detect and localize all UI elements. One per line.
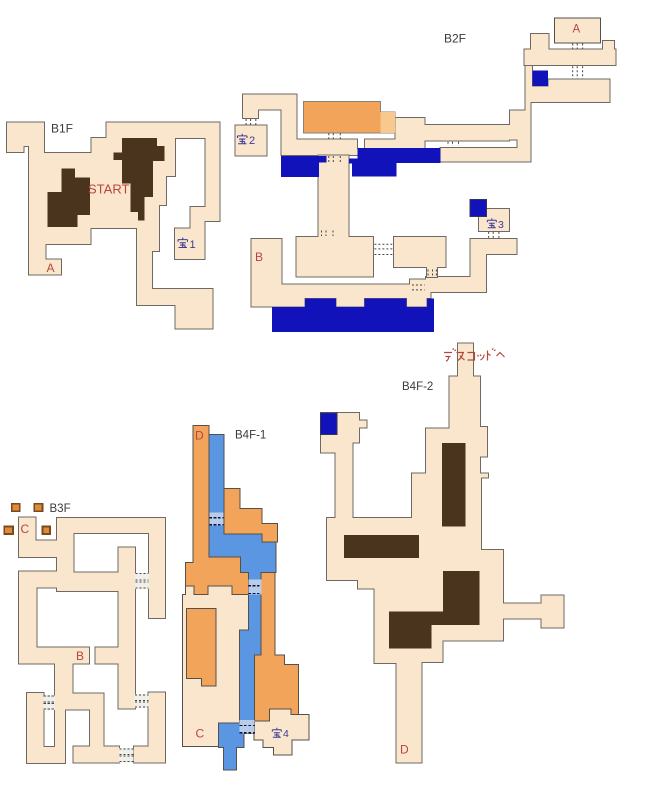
svg-text:A: A bbox=[47, 261, 55, 275]
svg-text:B3F: B3F bbox=[50, 503, 71, 515]
svg-text:B4F-1: B4F-1 bbox=[235, 430, 266, 442]
svg-text:3: 3 bbox=[498, 219, 504, 231]
svg-text:A: A bbox=[573, 24, 581, 36]
svg-text:START: START bbox=[88, 182, 129, 197]
svg-text:4: 4 bbox=[283, 728, 289, 740]
svg-text:C: C bbox=[196, 727, 205, 741]
svg-text:B1F: B1F bbox=[51, 122, 73, 136]
svg-text:C: C bbox=[21, 522, 30, 536]
svg-text:D: D bbox=[195, 429, 204, 443]
svg-text:B: B bbox=[255, 250, 263, 264]
svg-text:2: 2 bbox=[249, 135, 255, 147]
svg-text:B4F-2: B4F-2 bbox=[402, 381, 433, 393]
svg-text:B: B bbox=[76, 649, 84, 663]
svg-text:1: 1 bbox=[190, 239, 196, 251]
svg-text:B2F: B2F bbox=[444, 32, 466, 46]
svg-text:D: D bbox=[400, 743, 409, 757]
